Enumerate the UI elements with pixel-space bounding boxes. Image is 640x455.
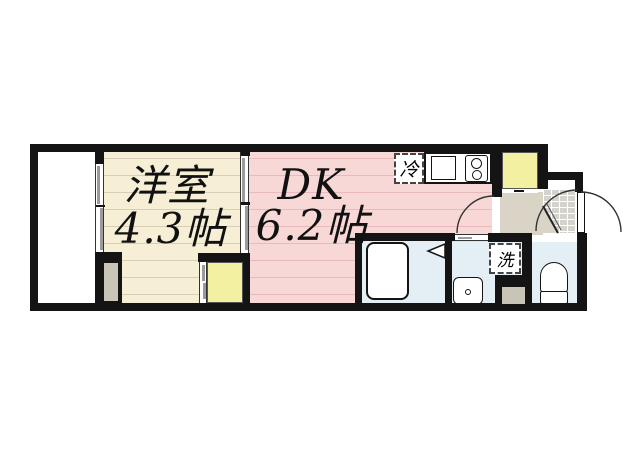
balcony-window [95,164,104,252]
shoe-cabinet [502,152,538,189]
wall-top [30,144,548,152]
refrigerator-label: 冷 [399,155,418,182]
front-door-outer-arc [581,192,621,232]
dk-hall-doorway [492,197,500,233]
pipe-space-left [104,263,118,301]
wall-left [30,144,38,311]
western-room-size: 4.3帖 [115,208,228,250]
stove-burner-icon [472,170,482,180]
washing-machine-space: 洗 [489,243,521,274]
washroom-sliding-door [455,234,488,241]
washing-machine-label: 洗 [497,246,514,271]
dk-name: DK [277,164,344,206]
bathtub [366,242,409,300]
shelf-tick [514,190,524,192]
stove-burner-icon [471,158,482,169]
balcony [38,152,95,303]
wall-entry-right-upper [575,180,583,192]
kitchen-sink [431,156,456,180]
wall-hall-bottom [488,233,532,242]
wall-entry-top [548,172,583,180]
western-room-name: 洋室 [124,165,210,207]
wall-divider-lower [243,255,250,303]
front-door-leaf [577,192,585,233]
wall-cabinet-right [538,144,548,189]
refrigerator-space: 冷 [394,153,424,184]
washbasin-drain-icon [465,289,471,295]
toilet-bowl [540,262,568,293]
wall-right-lower [577,233,587,311]
closet [207,262,243,303]
closet-sliding-door [199,262,207,303]
pipe-space-right [502,287,525,304]
room-divider-sliding-door [240,152,249,255]
wall-window-top [95,152,104,164]
entrance-tile [543,189,575,233]
floor-plan: 冷 洗 [0,0,640,455]
hallway-floor [500,192,543,235]
wall-kitchen-hall [492,144,502,197]
dk-size: 6.2帖 [256,205,369,247]
wall-bath-wash-divider [445,240,452,303]
wall-bath-top [355,233,455,241]
